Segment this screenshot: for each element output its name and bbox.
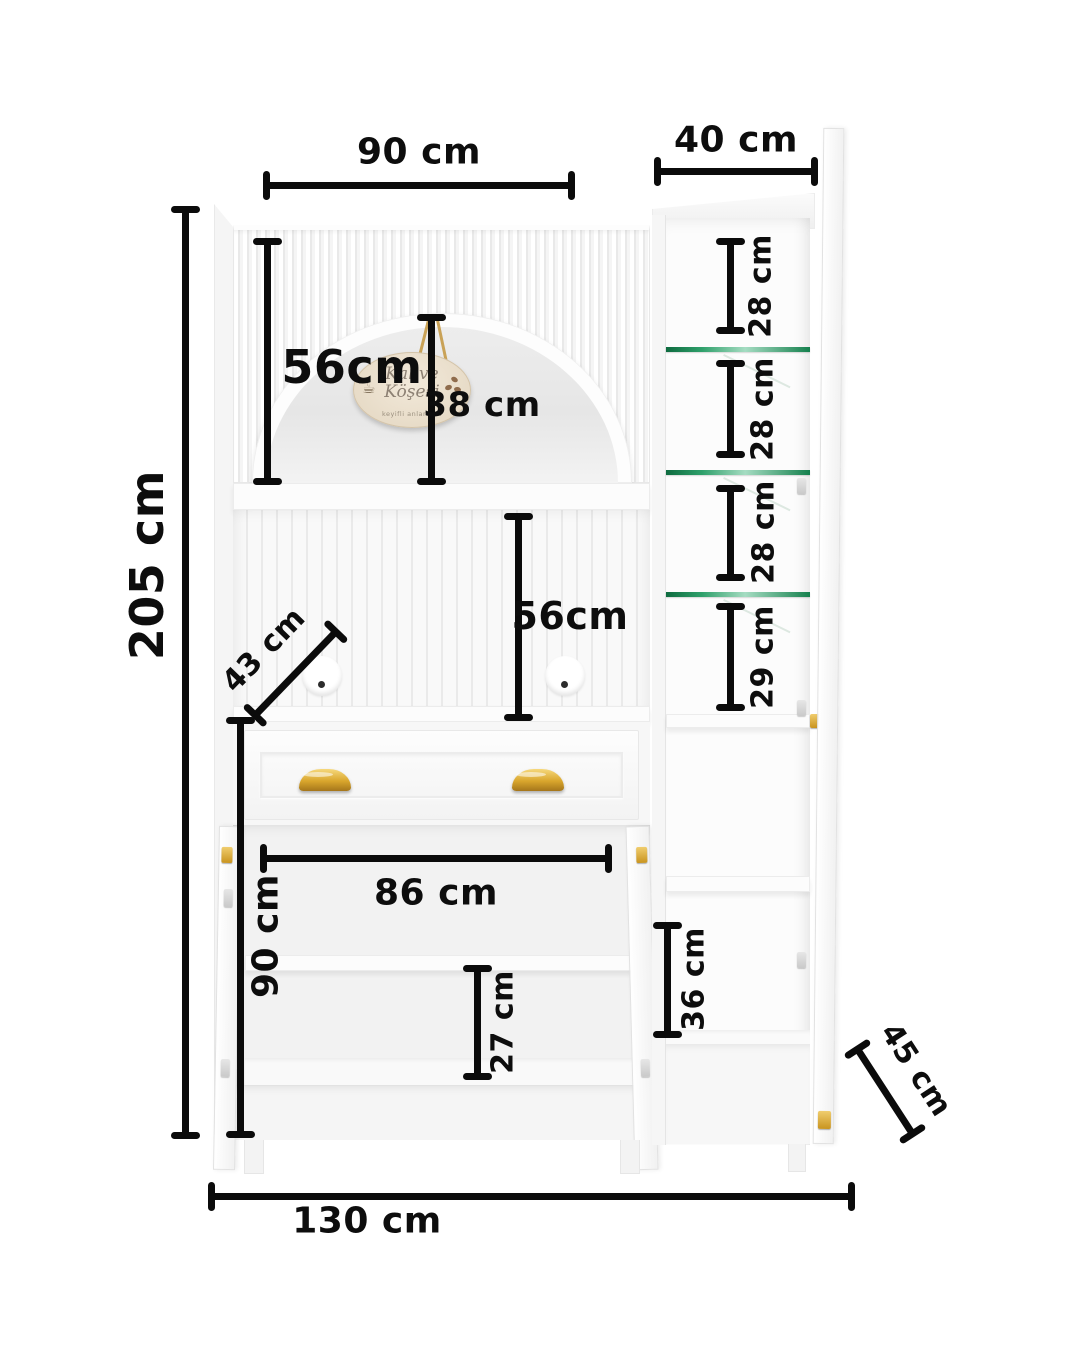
- side-hinge: [797, 952, 806, 968]
- side-display-bottom-shelf: [666, 714, 810, 728]
- dim-line-lower-height: [237, 719, 244, 1136]
- dim-label-upper-height: 56cm: [281, 340, 422, 394]
- cabinet-foot: [620, 1140, 640, 1174]
- side-middle-shelf: [666, 876, 810, 892]
- door-hinge-gold: [636, 847, 647, 863]
- dim-line-shelf-gap-1: [727, 240, 734, 332]
- dim-label-top-side-width: 40 cm: [674, 120, 798, 161]
- dim-line-top-side-width: [656, 168, 816, 175]
- dim-label-total-height: 205 cm: [120, 470, 174, 660]
- door-hinge: [221, 1059, 230, 1077]
- dim-label-shelf-gap-4: 29 cm: [746, 605, 781, 709]
- countertop: [233, 706, 650, 722]
- dim-line-total-height: [182, 208, 189, 1137]
- plinth: [233, 1085, 650, 1140]
- cabinet-foot: [788, 1144, 806, 1172]
- dim-line-lower-width: [262, 855, 610, 862]
- side-door-open: [813, 128, 845, 1144]
- dim-label-top-main-width: 90 cm: [357, 132, 481, 173]
- dim-label-total-width: 130 cm: [292, 1201, 442, 1242]
- dim-label-depth-diagonal: 45 cm: [873, 1017, 959, 1123]
- door-hinge: [641, 1059, 650, 1077]
- dim-label-lower-height: 90 cm: [246, 874, 287, 998]
- glass-shelf: [666, 347, 810, 352]
- dim-line-upper-height: [264, 240, 271, 483]
- dim-label-middle-height: 56cm: [511, 594, 628, 638]
- hutch-shelf: [233, 483, 650, 510]
- door-hinge: [224, 889, 233, 907]
- side-cabinet-floor: [666, 1030, 810, 1044]
- furniture-dimension-diagram: ☕ Kahve Köşesi keyifli anlar için: [0, 0, 1080, 1350]
- dim-label-shelf-gap-1: 28 cm: [744, 234, 779, 338]
- cabinet-foot: [244, 1140, 264, 1174]
- side-cabinet-base: [666, 1044, 810, 1144]
- door-hinge-gold: [818, 1111, 831, 1129]
- dim-label-side-lower-gap: 36 cm: [677, 927, 712, 1031]
- dim-label-shelf-gap-3: 28 cm: [747, 480, 782, 584]
- glass-shelf: [666, 470, 810, 475]
- glass-shelf: [666, 592, 810, 597]
- dim-line-top-main-width: [265, 182, 573, 189]
- dim-label-shelf-gap-2: 28 cm: [746, 357, 781, 461]
- lower-cabinet-shelf: [245, 955, 638, 971]
- dim-label-lower-width: 86 cm: [374, 873, 498, 914]
- dim-line-shelf-gap-2: [727, 362, 734, 456]
- cable-hole-right: [545, 656, 585, 696]
- dim-line-shelf-gap-3: [727, 487, 734, 579]
- lower-cabinet-floor: [245, 1058, 638, 1085]
- dim-line-total-width: [210, 1193, 853, 1200]
- side-hinge: [797, 478, 806, 494]
- dim-label-arch-height: 38 cm: [423, 385, 540, 425]
- door-hinge-gold: [221, 847, 232, 863]
- dim-line-side-lower-gap: [664, 924, 671, 1036]
- dim-line-lower-shelf-gap: [474, 967, 481, 1078]
- dim-line-shelf-gap-4: [727, 605, 734, 709]
- side-hinge: [797, 700, 806, 716]
- dim-label-lower-shelf-gap: 27 cm: [486, 970, 521, 1074]
